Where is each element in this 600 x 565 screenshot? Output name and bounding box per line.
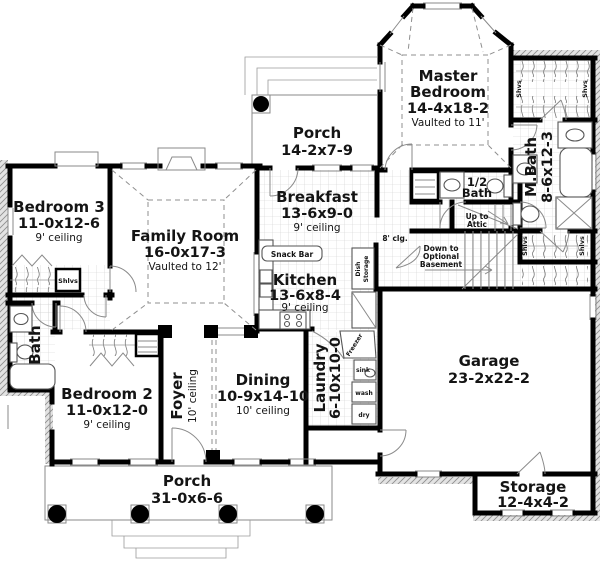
label-bedroom2-dims: 11-0x12-0	[66, 403, 148, 419]
half-bath-toilet-tank	[504, 175, 512, 197]
label-shlvs-2: Shlvs	[578, 236, 586, 256]
label-master-dims: 14-4x18-2	[407, 101, 489, 117]
label-basement-3: Basement	[420, 260, 463, 269]
label-porch-bottom-dims: 31-0x6-6	[151, 491, 223, 507]
label-laundry-name: Laundry	[311, 343, 329, 412]
label-porch-top-dims: 14-2x7-9	[281, 143, 353, 159]
top-steps-2	[257, 68, 377, 95]
top-porch-column	[253, 96, 269, 112]
family-hall-door	[110, 266, 136, 292]
label-bedroom3-note: 9' ceiling	[35, 232, 82, 244]
label-dry: dry	[358, 412, 369, 419]
floor-plan: Porch 14-2x7-9 Master Bedroom 14-4x18-2 …	[0, 0, 600, 565]
master-door	[385, 144, 412, 170]
fireplace	[158, 148, 205, 170]
label-storage-name: Storage	[500, 478, 567, 496]
label-family-dims: 16-0x17-3	[144, 245, 226, 261]
label-bedroom2-note: 9' ceiling	[83, 419, 130, 431]
bath-tub	[10, 364, 55, 389]
front-column	[206, 450, 220, 463]
half-bath-sink	[444, 179, 460, 191]
label-attic-2: Attic	[467, 220, 487, 229]
label-mbath-name: M.Bath	[522, 137, 540, 197]
bedroom2-shelf-cab	[136, 334, 159, 356]
bedroom3-bifold	[12, 255, 52, 266]
top-steps-1	[245, 57, 377, 95]
label-master-name2: Bedroom	[410, 83, 486, 101]
kitchen-range	[280, 312, 306, 329]
label-garage-dims: 23-2x22-2	[448, 371, 530, 387]
storage-door	[517, 452, 545, 474]
mbath-toilet	[521, 206, 539, 222]
front-steps	[112, 520, 250, 558]
label-bedroom3-dims: 11-0x12-6	[18, 216, 100, 232]
label-shlvs-1: Shlvs	[521, 236, 529, 256]
label-dining-dims: 10-9x14-10	[217, 389, 309, 405]
label-family-note: Vaulted to 12'	[148, 261, 221, 273]
front-door	[172, 428, 206, 462]
mbath-toilet-tank	[513, 203, 521, 225]
top-steps-3	[268, 80, 377, 95]
garage-entry-door	[380, 430, 406, 456]
label-master-note: Vaulted to 11'	[411, 117, 484, 129]
label-storage-dims: 12-4x4-2	[497, 495, 569, 511]
label-8-clg: 8' clg.	[382, 234, 408, 243]
bath-sink	[14, 314, 28, 325]
label-mbath-dims: 8-6x12-3	[540, 131, 556, 203]
label-foyer-name: Foyer	[168, 372, 186, 420]
label-shvs-2: Shvs	[581, 80, 589, 98]
label-wash: wash	[355, 390, 372, 397]
label-half-bath-2: Bath	[462, 186, 492, 200]
label-bath-name: Bath	[26, 325, 44, 364]
floor-plan-canvas: Porch 14-2x7-9 Master Bedroom 14-4x18-2 …	[0, 0, 600, 565]
linen-closet	[412, 172, 438, 200]
label-shlvs-box: Shlvs	[58, 277, 78, 285]
label-bedroom3-name: Bedroom 3	[13, 198, 105, 216]
label-porch-bottom-name: Porch	[163, 472, 211, 490]
label-sink: sink	[356, 367, 371, 374]
label-snack-bar: Snack Bar	[271, 250, 314, 259]
label-breakfast-name: Breakfast	[276, 188, 358, 206]
label-dining-name: Dining	[236, 371, 291, 389]
label-bedroom2-name: Bedroom 2	[61, 385, 153, 403]
mbath-sink-1	[566, 129, 584, 141]
label-kitchen-note: 9' ceiling	[281, 302, 328, 314]
label-dish-1: Dish	[355, 262, 362, 277]
mbath-tub	[560, 148, 592, 197]
label-breakfast-dims: 13-6x9-0	[281, 206, 353, 222]
label-garage-name: Garage	[459, 352, 520, 370]
label-laundry-dims: 6-10x10-0	[328, 337, 344, 419]
kitchen-sink-1	[260, 270, 272, 283]
bath-toilet-tank	[10, 343, 17, 362]
label-porch-top-name: Porch	[293, 124, 341, 142]
label-foyer-note: 10' ceiling	[187, 369, 199, 423]
label-family-name: Family Room	[131, 227, 239, 245]
label-dish-2: Storage	[363, 256, 370, 283]
label-shvs-1: Shvs	[515, 80, 523, 98]
label-breakfast-note: 9' ceiling	[293, 222, 340, 234]
label-kitchen-name: Kitchen	[273, 271, 337, 289]
label-dining-note: 10' ceiling	[236, 405, 290, 417]
